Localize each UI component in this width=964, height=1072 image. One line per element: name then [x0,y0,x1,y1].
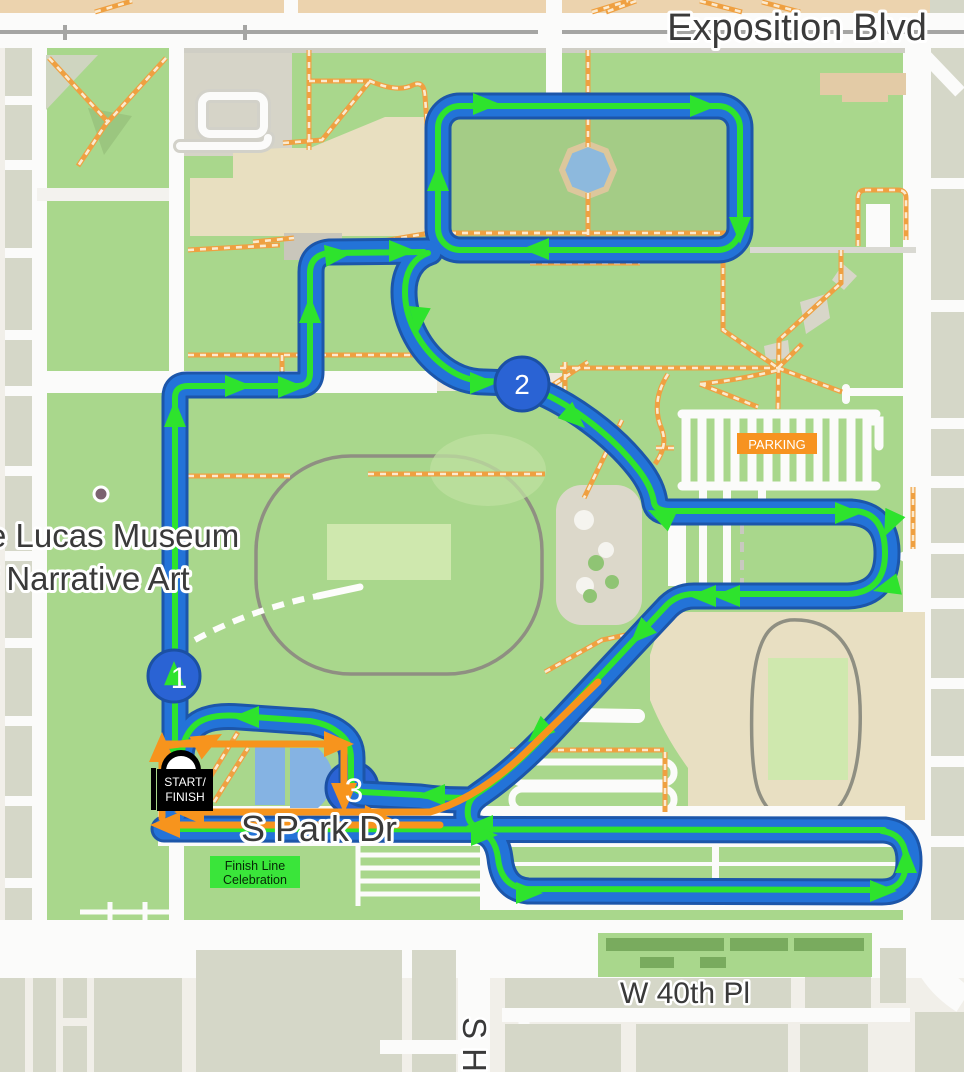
svg-text:Exposition Blvd: Exposition Blvd [667,7,927,49]
svg-text:PARKING: PARKING [748,437,806,452]
svg-text:1: 1 [171,662,188,695]
svg-text:Celebration: Celebration [223,873,287,887]
svg-text:START/: START/ [164,775,206,789]
svg-text:FINISH: FINISH [165,790,204,804]
svg-text:f Narrative Art: f Narrative Art [0,560,190,597]
svg-text:Finish Line: Finish Line [225,859,285,873]
svg-text:e Lucas Museum: e Lucas Museum [0,517,239,554]
svg-text:S Park Dr: S Park Dr [241,808,397,849]
svg-text:S H: S H [456,1017,493,1072]
svg-text:2: 2 [514,369,530,400]
svg-text:3: 3 [345,772,364,810]
svg-text:W 40th Pl: W 40th Pl [620,977,750,1010]
